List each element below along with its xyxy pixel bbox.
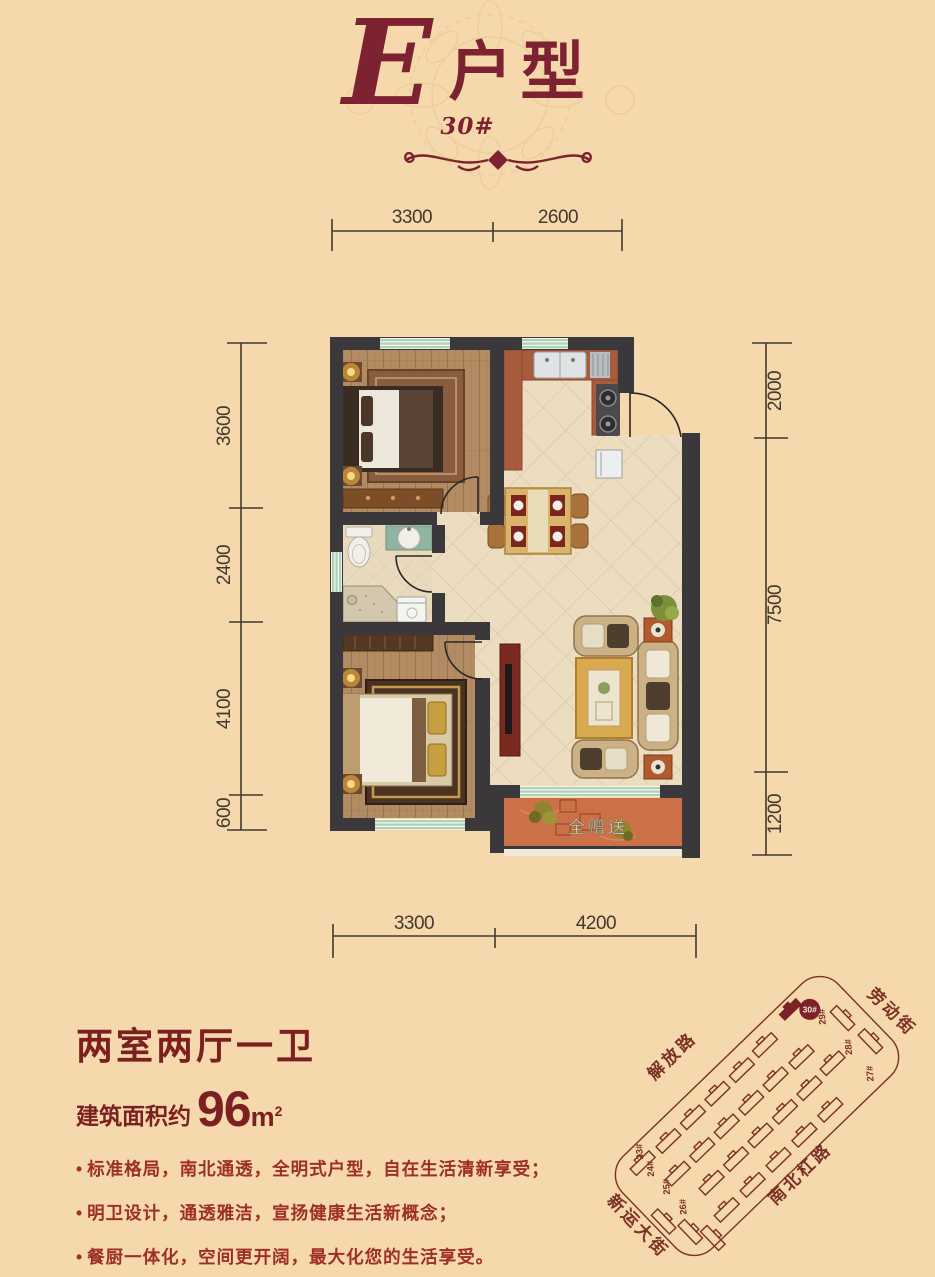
dimension-right: 2000 7500 1200 xyxy=(752,343,792,855)
dim-left-3: 4100 xyxy=(214,689,235,729)
dim-left-2: 2400 xyxy=(214,545,235,585)
dim-bottom-2: 4200 xyxy=(576,913,616,934)
title-type-label: 户型 xyxy=(448,37,592,108)
building-label-26: 26# xyxy=(678,1198,690,1215)
building-label-25: 25# xyxy=(661,1178,673,1195)
wardrobe xyxy=(343,634,433,651)
building-label-28: 28# xyxy=(843,1038,855,1055)
building-label-24: 24# xyxy=(645,1160,657,1177)
dim-right-3: 1200 xyxy=(765,794,786,834)
unit-info-block: 两室两厅一卫 建筑面积约 96 m2 标准格局，南北通透，全明式户型，自在生活清… xyxy=(76,1016,556,1277)
toilet xyxy=(348,537,370,567)
fridge xyxy=(596,450,622,478)
dimension-bottom: 3300 4200 xyxy=(333,913,696,958)
road-label-jiefang: 解放路 xyxy=(643,1028,700,1084)
feature-item: 明卫设计，通透雅洁，宣扬健康生活新概念； xyxy=(76,1200,556,1225)
dim-right-1: 2000 xyxy=(765,371,786,411)
road-label-xinyun: 新运大街 xyxy=(603,1190,673,1261)
dim-left-1: 3600 xyxy=(214,406,235,446)
dimension-top: 3300 2600 xyxy=(332,207,622,251)
feature-list: 标准格局，南北通透，全明式户型，自在生活清新享受； 明卫设计，通透雅洁，宣扬健康… xyxy=(76,1156,556,1269)
feature-item: 餐厨一体化，空间更开阔，最大化您的生活享受。 xyxy=(76,1244,556,1269)
bedroom-top-window xyxy=(380,338,450,349)
balcony-label: 全赠送 xyxy=(568,818,628,837)
area-unit: m2 xyxy=(251,1104,283,1134)
floor-plan: 3300 2600 3300 4200 3600 2400 4100 600 2… xyxy=(180,195,820,970)
building-label-27: 27# xyxy=(864,1065,876,1082)
entry-door xyxy=(630,393,681,437)
site-boundary xyxy=(605,966,910,1266)
area-prefix: 建筑面积约 xyxy=(76,1105,191,1134)
dimension-left: 3600 2400 4100 600 xyxy=(214,343,267,830)
dim-left-4: 600 xyxy=(214,798,235,828)
road-label-laodong: 劳动街 xyxy=(864,984,921,1040)
tv xyxy=(505,664,512,734)
building-badge-30-label: 30# xyxy=(803,1004,817,1014)
dim-right-2: 7500 xyxy=(765,585,786,625)
living-room-window xyxy=(520,786,660,797)
feature-item: 标准格局，南北通透，全明式户型，自在生活清新享受； xyxy=(76,1156,556,1181)
bedroom-bottom-window xyxy=(375,819,465,830)
dim-top-1: 3300 xyxy=(392,207,432,228)
title-block: E户型 30# xyxy=(0,0,935,200)
road-label-nanbeigang: 南北杠路 xyxy=(764,1139,835,1209)
site-map: 30# 29# 28# 27# 23# 24# 25# 26# 劳动街 解放路 … xyxy=(580,960,935,1277)
balcony: 全赠送 xyxy=(504,798,682,856)
building-number: 30# xyxy=(0,113,935,140)
area-value: 96 xyxy=(197,1084,251,1134)
area-line: 建筑面积约 96 m2 xyxy=(76,1084,556,1134)
floorplan-brochure-page: E户型 30# xyxy=(0,0,935,1277)
dim-top-2: 2600 xyxy=(538,207,578,228)
title-flourish xyxy=(398,140,598,180)
bathroom-window xyxy=(331,552,342,592)
kitchen-window xyxy=(522,338,568,349)
layout-title: 两室两厅一卫 xyxy=(76,1016,556,1070)
dim-bottom-1: 3300 xyxy=(394,913,434,934)
building-label-29: 29# xyxy=(817,1008,829,1025)
building-label-23: 23# xyxy=(634,1143,646,1160)
